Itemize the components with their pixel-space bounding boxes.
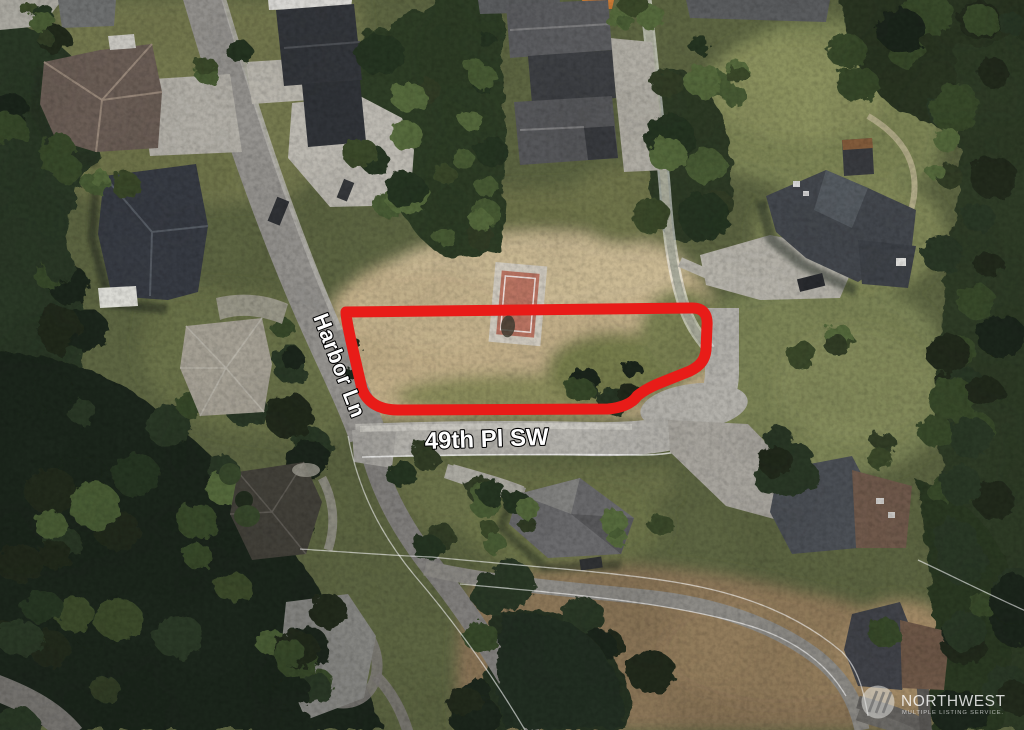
svg-text:49th Pl SW: 49th Pl SW bbox=[424, 424, 549, 455]
svg-text:NORTHWEST: NORTHWEST bbox=[901, 693, 1006, 710]
svg-text:MULTIPLE LISTING SERVICE.: MULTIPLE LISTING SERVICE. bbox=[902, 710, 1004, 716]
